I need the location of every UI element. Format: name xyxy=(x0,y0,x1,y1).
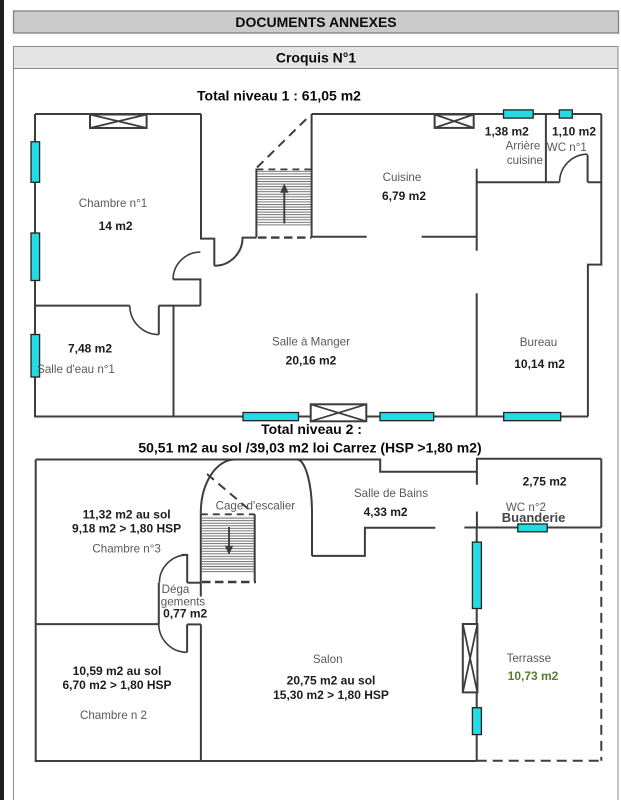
svg-text:6,79 m2: 6,79 m2 xyxy=(382,189,426,203)
svg-text:20,75 m2 au sol: 20,75 m2 au sol xyxy=(287,674,376,688)
svg-text:1,10 m2: 1,10 m2 xyxy=(552,125,596,139)
svg-text:Chambre n°1: Chambre n°1 xyxy=(79,197,147,210)
svg-text:Salle à Manger: Salle à Manger xyxy=(272,336,350,349)
svg-text:0,77 m2: 0,77 m2 xyxy=(163,607,207,621)
svg-text:50,51 m2 au sol /39,03 m2 loi: 50,51 m2 au sol /39,03 m2 loi Carrez (HS… xyxy=(138,440,481,456)
svg-text:Croquis N°1: Croquis N°1 xyxy=(276,50,356,66)
svg-text:6,70 m2 > 1,80 HSP: 6,70 m2 > 1,80 HSP xyxy=(62,678,171,692)
svg-text:Cage d'escalier: Cage d'escalier xyxy=(216,500,296,513)
svg-text:Salle de Bains: Salle de Bains xyxy=(354,487,428,500)
svg-text:Bureau: Bureau xyxy=(520,336,557,349)
svg-text:Chambre n°3: Chambre n°3 xyxy=(92,543,160,556)
svg-text:10,14 m2: 10,14 m2 xyxy=(514,357,565,371)
svg-text:4,33 m2: 4,33 m2 xyxy=(364,505,408,519)
svg-text:7,48 m2: 7,48 m2 xyxy=(68,342,112,356)
svg-text:10,59 m2 au sol: 10,59 m2 au sol xyxy=(73,664,162,678)
svg-text:DOCUMENTS ANNEXES: DOCUMENTS ANNEXES xyxy=(235,14,396,30)
svg-text:14 m2: 14 m2 xyxy=(99,219,133,233)
svg-text:Arrière: Arrière xyxy=(506,140,541,153)
svg-text:Terrasse: Terrasse xyxy=(507,652,551,665)
svg-text:10,73 m2: 10,73 m2 xyxy=(508,669,559,683)
svg-text:Déga: Déga xyxy=(162,583,190,596)
svg-text:Total niveau 1 : 61,05 m2: Total niveau 1 : 61,05 m2 xyxy=(197,88,361,104)
svg-text:Cuisine: Cuisine xyxy=(383,171,422,184)
svg-text:WC n°1: WC n°1 xyxy=(547,141,587,154)
svg-text:20,16 m2: 20,16 m2 xyxy=(286,354,337,368)
svg-text:Salon: Salon xyxy=(313,653,343,666)
svg-text:Chambre n 2: Chambre n 2 xyxy=(80,709,147,722)
svg-text:11,32 m2 au sol: 11,32 m2 au sol xyxy=(83,508,171,522)
svg-text:1,38 m2: 1,38 m2 xyxy=(485,125,529,139)
svg-text:15,30 m2 > 1,80 HSP: 15,30 m2 > 1,80 HSP xyxy=(273,688,389,702)
svg-text:Salle d'eau n°1: Salle d'eau n°1 xyxy=(37,363,115,376)
svg-text:2,75 m2: 2,75 m2 xyxy=(523,475,567,489)
svg-text:Total niveau 2 :: Total niveau 2 : xyxy=(261,421,362,437)
svg-text:9,18 m2 > 1,80 HSP: 9,18 m2 > 1,80 HSP xyxy=(72,522,181,536)
svg-text:Buanderie: Buanderie xyxy=(502,510,566,525)
svg-text:cuisine: cuisine xyxy=(507,154,543,167)
